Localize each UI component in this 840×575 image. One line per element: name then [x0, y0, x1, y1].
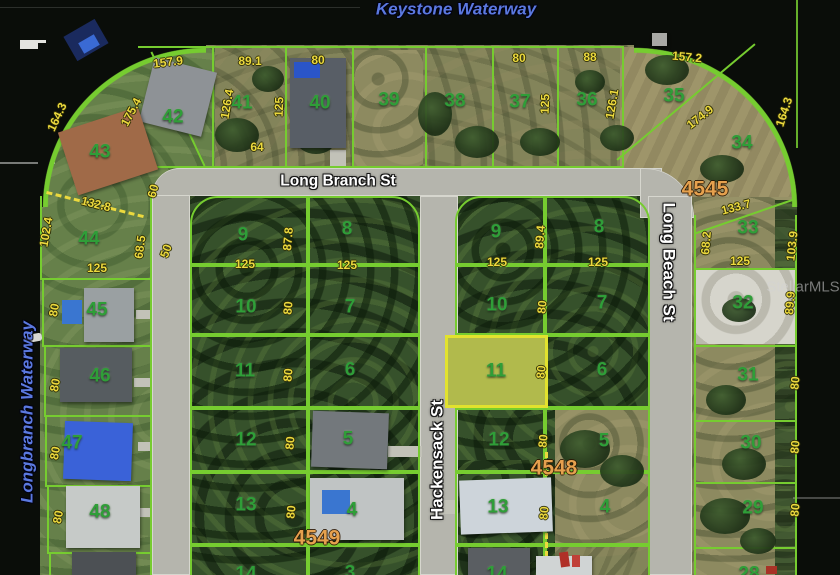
- dimension-label: 80: [535, 300, 548, 314]
- keystone-waterway-label: Keystone Waterway: [376, 1, 536, 18]
- car: [572, 555, 580, 567]
- lot-number: 5: [343, 430, 354, 449]
- tree-clump: [600, 125, 634, 151]
- dimension-label: 88: [583, 51, 596, 63]
- left-loop-road: [152, 168, 190, 575]
- plat-boundary-in-water: [796, 0, 798, 148]
- dimension-label: 80: [47, 302, 61, 317]
- lot-number: 9: [238, 226, 249, 245]
- lot-number: 30: [740, 434, 761, 453]
- lot-number: 13: [487, 498, 508, 517]
- dimension-label: 157.2: [672, 50, 703, 65]
- tree-clump: [740, 528, 776, 554]
- lot-number: 47: [61, 434, 82, 453]
- lot-number: 10: [486, 296, 507, 315]
- plat-map[interactable]: Keystone Waterway Longbranch Waterway Lo…: [0, 0, 840, 575]
- dimension-label: 80: [788, 440, 801, 454]
- dimension-label: 89.4: [533, 225, 547, 249]
- lot-number: 6: [597, 361, 608, 380]
- lot-number: 4: [347, 501, 358, 520]
- tree-clump: [455, 126, 499, 158]
- dimension-label: 64: [250, 141, 263, 153]
- block-number-4549: 4549: [294, 528, 341, 549]
- dimension-label: 157.9: [152, 54, 183, 70]
- lot-number: 40: [309, 94, 330, 113]
- dimension-label: 80: [788, 503, 801, 517]
- hackensack-street-label: Hackensack St: [429, 400, 446, 520]
- lot-number: 7: [345, 298, 356, 317]
- parcel-a7: [308, 265, 420, 335]
- lot-number: 11: [486, 362, 506, 381]
- lot-number: 12: [235, 431, 256, 450]
- car: [559, 551, 570, 567]
- dimension-label: 125: [730, 255, 750, 267]
- lot-number: 3: [345, 564, 356, 575]
- parcel-a6: [308, 335, 420, 408]
- section-line: [793, 497, 840, 499]
- lot-number: 6: [345, 361, 356, 380]
- dimension-label: 80: [311, 54, 324, 66]
- dimension-label: 80: [281, 368, 294, 382]
- pool: [62, 300, 82, 324]
- dimension-label: 80: [537, 506, 550, 520]
- lot-number: 35: [663, 87, 684, 106]
- dimension-label: 80: [51, 509, 65, 524]
- dimension-label: 80: [48, 445, 62, 460]
- lot-number: 14: [235, 565, 256, 575]
- block-number-4548: 4548: [531, 458, 578, 479]
- lot-number: 42: [162, 108, 183, 127]
- dimension-label: 125: [235, 258, 255, 270]
- lot-number: 7: [597, 294, 608, 313]
- section-line: [0, 7, 360, 8]
- long-beach-street-label: Long Beach St: [661, 202, 678, 321]
- tree-clump: [252, 66, 284, 92]
- lot-number: 33: [737, 219, 758, 238]
- block-number-4545: 4545: [682, 179, 729, 200]
- lot-number: 12: [488, 431, 509, 450]
- lot-number: 11: [235, 362, 255, 381]
- lot-number: 44: [78, 230, 99, 249]
- dimension-label: 80: [284, 505, 297, 519]
- lot-number: 5: [599, 432, 610, 451]
- lot-number: 13: [235, 496, 256, 515]
- lot-number: 31: [737, 366, 758, 385]
- tree-clump: [520, 128, 560, 156]
- tree-clump: [600, 455, 644, 487]
- dimension-label: 125: [588, 256, 608, 268]
- lot-number: 38: [444, 92, 465, 111]
- dimension-label: 80: [534, 365, 547, 379]
- dimension-label: 125: [539, 94, 552, 114]
- long-branch-street-label: Long Branch St: [280, 173, 395, 189]
- lot-number: 29: [742, 499, 763, 518]
- lot-number: 43: [89, 143, 110, 162]
- stellar-mls-watermark: StellarMLS: [766, 280, 839, 295]
- lot-number: 34: [731, 134, 752, 153]
- parcel-a3: [308, 545, 420, 575]
- dimension-label: 103.9: [784, 230, 799, 261]
- dimension-label: 87.8: [281, 227, 295, 251]
- lot-number: 39: [378, 91, 399, 110]
- dimension-label: 68.5: [132, 235, 147, 260]
- house-roof: [72, 552, 136, 575]
- dimension-label: 80: [536, 434, 549, 448]
- dimension-label: 125: [337, 259, 357, 271]
- lot-number: 4: [600, 498, 611, 517]
- lot-number: 32: [732, 294, 753, 313]
- lot-number: 10: [235, 298, 256, 317]
- lot-number: 37: [509, 93, 530, 112]
- dimension-label: 125: [273, 97, 286, 117]
- dimension-label: 80: [788, 376, 801, 390]
- lot-number: 8: [594, 218, 605, 237]
- dimension-label: 89.1: [238, 55, 261, 67]
- dimension-label: 125: [487, 256, 507, 268]
- dimension-label: 80: [48, 377, 62, 392]
- lot-number: 14: [486, 565, 507, 575]
- lot-number: 28: [738, 565, 759, 575]
- car: [766, 566, 777, 574]
- lot-number: 45: [86, 301, 107, 320]
- lot-number: 36: [576, 91, 597, 110]
- tree-clump: [706, 385, 746, 415]
- dimension-label: 80: [512, 52, 525, 64]
- lot-number: 8: [342, 220, 353, 239]
- dimension-label: 68.2: [699, 231, 713, 255]
- lot-number: 48: [89, 503, 110, 522]
- dimension-label: 80: [283, 436, 296, 450]
- dimension-label: 125: [87, 262, 107, 274]
- long-branch-street: [152, 168, 662, 196]
- dimension-label: 80: [281, 301, 294, 315]
- dimension-label: 60: [145, 183, 160, 199]
- parcel-a8: [308, 196, 420, 265]
- longbranch-waterway-label: Longbranch Waterway: [19, 321, 36, 503]
- lot-number: 46: [89, 367, 110, 386]
- shed-roof: [652, 33, 667, 46]
- lot-number: 9: [491, 223, 502, 242]
